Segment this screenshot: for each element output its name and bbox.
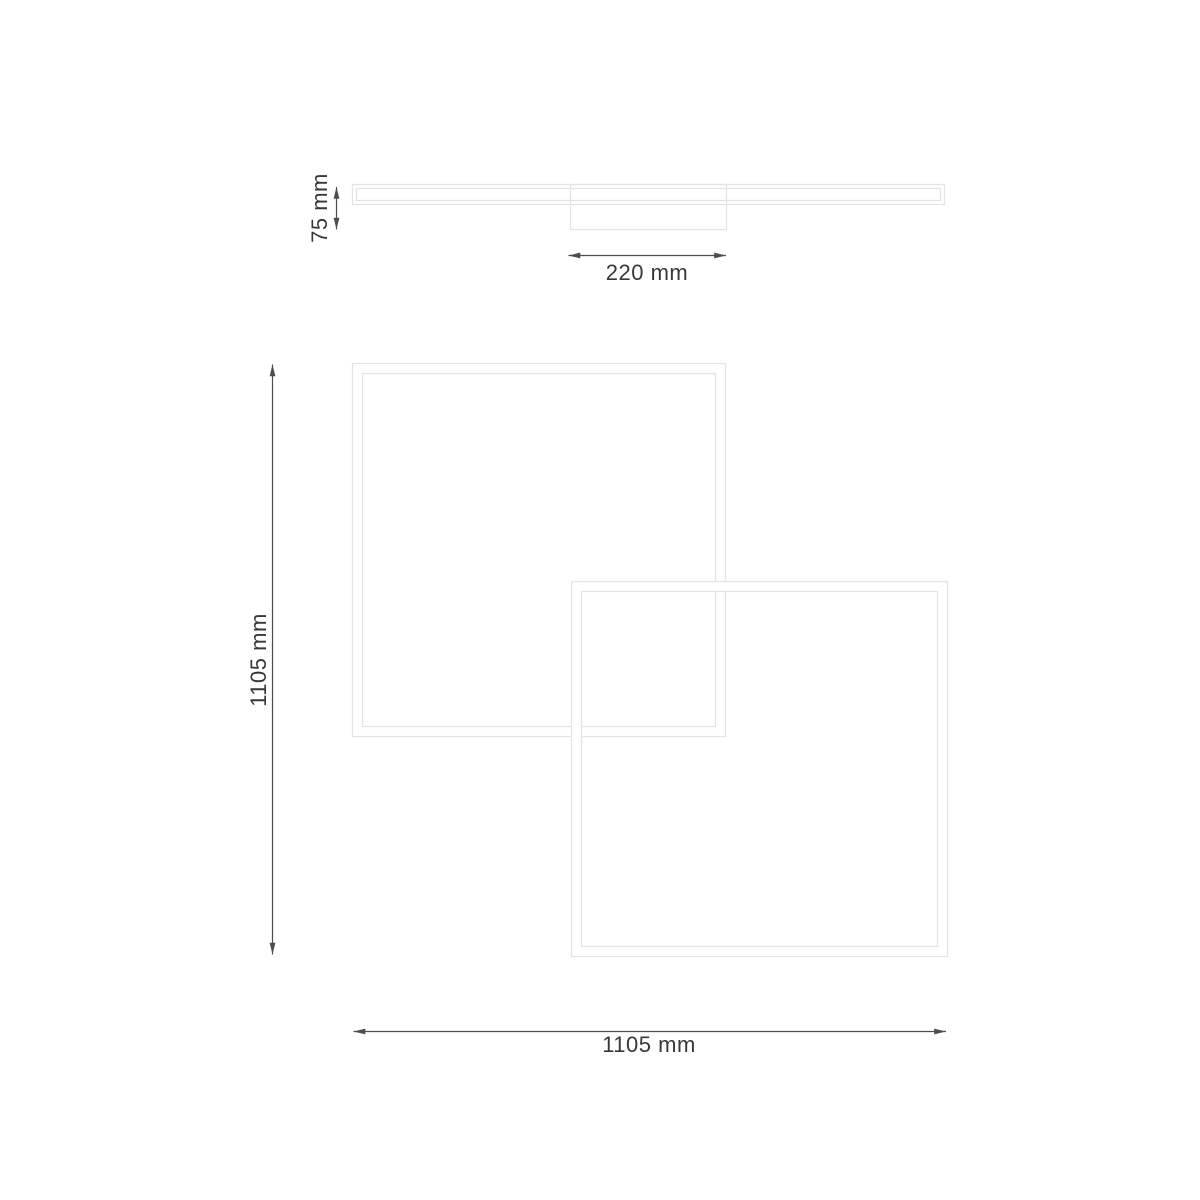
plan-view: 1105 mm 1105 mm <box>246 364 948 1058</box>
dim-label-width-1105: 1105 mm <box>602 1032 696 1057</box>
frame-square-upper-left <box>353 364 726 737</box>
diagram-canvas: 75 mm 220 mm 1105 mm 1105 mm <box>0 0 1200 1200</box>
dimension-diagram: 75 mm 220 mm 1105 mm 1105 mm <box>0 0 1200 1200</box>
frame-square-lower-right <box>572 582 948 957</box>
dim-label-height-75: 75 mm <box>307 173 332 243</box>
canopy-profile <box>571 185 727 230</box>
dim-label-height-1105: 1105 mm <box>246 613 271 707</box>
dim-label-canopy-width-220: 220 mm <box>606 260 688 285</box>
side-view: 75 mm 220 mm <box>307 173 945 285</box>
